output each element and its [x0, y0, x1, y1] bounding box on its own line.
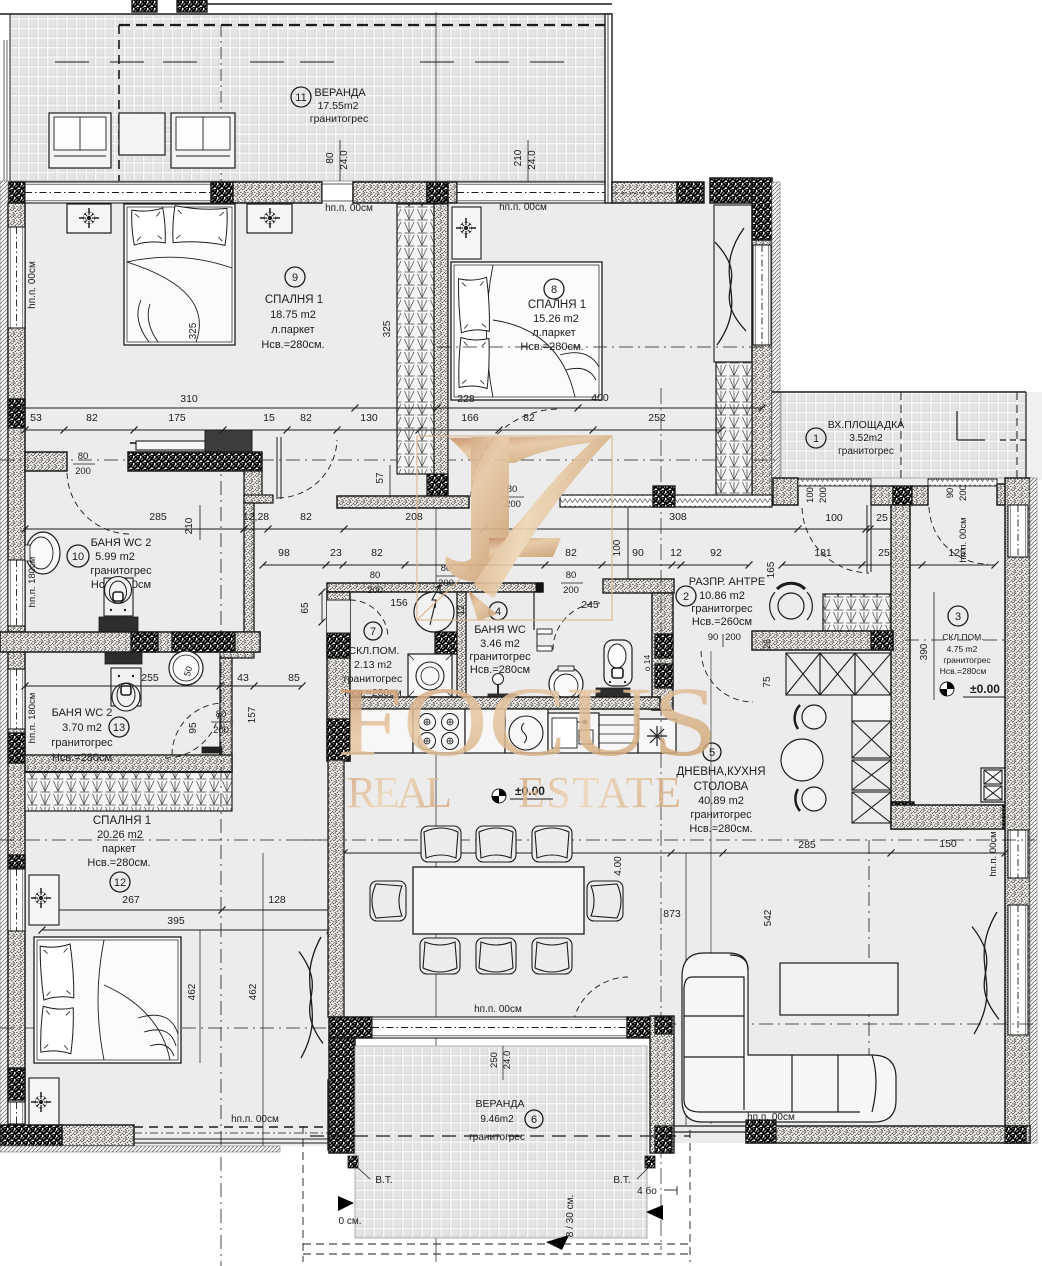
svg-text:Нсв.=280см: Нсв.=280см	[940, 666, 987, 676]
svg-text:82: 82	[565, 547, 577, 559]
svg-text:3.46 m2: 3.46 m2	[480, 638, 520, 650]
svg-text:80: 80	[78, 451, 89, 462]
svg-text:FOCUS: FOCUS	[337, 666, 718, 777]
svg-text:252: 252	[648, 412, 666, 424]
svg-text:200: 200	[818, 487, 829, 503]
svg-text:90: 90	[945, 488, 956, 499]
svg-text:5.99 m2: 5.99 m2	[95, 551, 135, 563]
svg-text:паркет: паркет	[102, 843, 136, 855]
svg-text:4: 4	[495, 606, 501, 618]
svg-text:hп.п. 00см: hп.п. 00см	[474, 1004, 522, 1015]
svg-text:156: 156	[390, 597, 408, 609]
svg-text:100: 100	[825, 512, 843, 524]
svg-text:82: 82	[300, 511, 312, 523]
svg-text:395: 395	[167, 915, 185, 927]
svg-text:6: 6	[531, 1114, 537, 1126]
svg-text:15: 15	[263, 412, 275, 424]
svg-text:В.Т.: В.Т.	[375, 1175, 392, 1186]
svg-text:90: 90	[632, 547, 644, 559]
svg-text:100: 100	[805, 487, 816, 503]
svg-text:4 бо: 4 бо	[637, 1185, 657, 1197]
svg-text:100: 100	[612, 539, 623, 556]
svg-text:200: 200	[563, 585, 579, 596]
svg-text:СТОЛОВА: СТОЛОВА	[694, 781, 749, 793]
svg-text:210: 210	[513, 149, 524, 166]
svg-text:0 см.: 0 см.	[339, 1216, 362, 1227]
svg-text:гранитогрес: гранитогрес	[943, 655, 991, 665]
svg-text:98: 98	[278, 547, 290, 559]
svg-text:Нсв.=260см: Нсв.=260см	[692, 616, 752, 628]
svg-text:255: 255	[141, 672, 159, 684]
svg-text:65: 65	[300, 602, 311, 614]
svg-text:hп.п. 00см: hп.п. 00см	[27, 261, 38, 309]
svg-text:4.00: 4.00	[613, 856, 624, 876]
svg-text:128: 128	[268, 894, 286, 906]
svg-text:гранитогрес: гранитогрес	[469, 651, 531, 663]
svg-text:СКЛ.ПОМ.: СКЛ.ПОМ.	[349, 645, 400, 657]
svg-text:РАЗПР. АНТРЕ: РАЗПР. АНТРЕ	[689, 576, 765, 588]
svg-text:3: 3	[955, 611, 961, 623]
svg-text:11: 11	[295, 92, 306, 104]
svg-text:310: 310	[180, 393, 198, 405]
svg-text:гранитогрес: гранитогрес	[90, 565, 152, 577]
svg-text:4.75 m2: 4.75 m2	[947, 644, 978, 654]
svg-text:166: 166	[461, 412, 479, 424]
svg-text:СПАЛНЯ 1: СПАЛНЯ 1	[265, 294, 323, 306]
svg-text:hп.п. 00см: hп.п. 00см	[325, 203, 373, 214]
svg-text:200: 200	[367, 585, 383, 596]
svg-text:325: 325	[188, 322, 199, 339]
svg-text:308: 308	[669, 511, 687, 523]
svg-text:л.паркет: л.паркет	[271, 324, 314, 336]
svg-text:12: 12	[456, 605, 466, 615]
svg-text:75: 75	[762, 676, 773, 688]
svg-text:53: 53	[30, 412, 42, 424]
svg-text:8: 8	[551, 284, 557, 296]
svg-text:БАНЯ WC 2: БАНЯ WC 2	[91, 537, 152, 549]
svg-text:200: 200	[725, 632, 741, 643]
svg-text:hп.п. 180см: hп.п. 180см	[27, 557, 38, 608]
svg-text:9.46m2: 9.46m2	[480, 1114, 514, 1125]
svg-text:130: 130	[360, 412, 378, 424]
svg-text:25: 25	[878, 547, 890, 559]
svg-text:23: 23	[330, 547, 342, 559]
svg-text:542: 542	[763, 909, 774, 926]
svg-text:17.55m2: 17.55m2	[318, 100, 359, 112]
svg-text:15.26 m2: 15.26 m2	[533, 313, 579, 325]
svg-text:8 / 30 см.: 8 / 30 см.	[565, 1195, 576, 1237]
svg-text:26: 26	[762, 639, 772, 649]
svg-text:9: 9	[292, 272, 298, 284]
svg-text:СПАЛНЯ 1: СПАЛНЯ 1	[528, 299, 586, 311]
svg-text:л.паркет: л.паркет	[532, 327, 575, 339]
svg-text:80: 80	[325, 152, 336, 164]
svg-text:208: 208	[405, 511, 423, 523]
svg-text:400: 400	[591, 392, 609, 404]
svg-text:462: 462	[248, 983, 259, 1000]
svg-text:3.52m2: 3.52m2	[849, 433, 883, 444]
svg-text:24.0: 24.0	[502, 1051, 513, 1070]
svg-text:Нсв.=280см.: Нсв.=280см.	[87, 857, 150, 869]
svg-text:ВЕРАНДА: ВЕРАНДА	[314, 87, 366, 99]
svg-text:гранитогрес: гранитогрес	[469, 1132, 525, 1143]
svg-text:гранитогрес: гранитогрес	[691, 603, 753, 615]
svg-text:10.86 m2: 10.86 m2	[699, 590, 745, 602]
svg-text:ВЕРАНДА: ВЕРАНДА	[475, 1098, 524, 1110]
svg-text:БАНЯ WC: БАНЯ WC	[474, 624, 526, 636]
svg-text:82: 82	[86, 412, 98, 424]
svg-text:175: 175	[168, 412, 186, 424]
svg-text:390: 390	[919, 643, 930, 660]
svg-text:±0.00: ±0.00	[970, 682, 1000, 696]
svg-text:85: 85	[288, 672, 300, 684]
svg-text:гранитогрес: гранитогрес	[690, 809, 752, 821]
svg-text:40.89 m2: 40.89 m2	[698, 795, 744, 807]
svg-text:10: 10	[72, 551, 84, 563]
svg-text:hп.п. 00см: hп.п. 00см	[958, 517, 969, 562]
svg-text:95: 95	[188, 722, 199, 734]
svg-text:210: 210	[184, 517, 195, 534]
svg-text:20.26 m2: 20.26 m2	[97, 829, 143, 841]
svg-text:1: 1	[813, 433, 819, 445]
svg-text:Нсв.=280см.: Нсв.=280см.	[261, 339, 324, 351]
svg-text:267: 267	[122, 894, 140, 906]
svg-text:24.0: 24.0	[527, 150, 538, 170]
svg-text:18.75 m2: 18.75 m2	[270, 309, 316, 321]
svg-text:873: 873	[663, 908, 681, 920]
svg-text:200: 200	[958, 485, 969, 501]
svg-text:Нсв.=280см.: Нсв.=280см.	[689, 823, 752, 835]
svg-text:245: 245	[581, 599, 599, 611]
svg-text:12,28: 12,28	[243, 511, 269, 523]
svg-text:2: 2	[683, 591, 689, 603]
svg-text:90: 90	[708, 632, 719, 643]
svg-text:165: 165	[766, 561, 777, 578]
svg-text:250: 250	[489, 1052, 500, 1068]
svg-text:Нсв.=280см: Нсв.=280см	[52, 752, 112, 764]
svg-text:150: 150	[939, 838, 957, 850]
svg-text:157: 157	[247, 706, 258, 723]
svg-text:80: 80	[566, 570, 577, 581]
svg-text:гранитогрес: гранитогрес	[838, 446, 894, 457]
svg-text:24.0: 24.0	[339, 150, 350, 170]
svg-text:462: 462	[187, 983, 198, 1000]
svg-text:REAL: REAL	[347, 768, 452, 817]
svg-text:82: 82	[371, 547, 383, 559]
svg-text:гранитогрес: гранитогрес	[51, 737, 113, 749]
svg-text:200: 200	[213, 725, 229, 736]
svg-text:СПАЛНЯ 1: СПАЛНЯ 1	[93, 815, 151, 827]
svg-text:СКЛ.ПОМ.: СКЛ.ПОМ.	[942, 632, 983, 642]
svg-text:hп.п. 00см: hп.п. 00см	[499, 202, 547, 213]
svg-text:hп.п. 180см: hп.п. 180см	[27, 693, 38, 744]
svg-text:181: 181	[814, 547, 832, 559]
svg-text:285: 285	[798, 839, 816, 851]
svg-text:гранитогрес: гранитогрес	[310, 113, 368, 125]
svg-text:hп.п. 00см: hп.п. 00см	[231, 1114, 279, 1125]
svg-text:92: 92	[710, 547, 722, 559]
svg-text:200: 200	[75, 466, 91, 477]
svg-text:В.Т.: В.Т.	[613, 1175, 630, 1186]
svg-text:25: 25	[876, 512, 888, 524]
svg-text:12: 12	[670, 547, 682, 559]
svg-text:57: 57	[375, 472, 386, 484]
svg-text:228: 228	[457, 393, 475, 405]
svg-text:285: 285	[149, 511, 167, 523]
svg-text:82: 82	[300, 412, 312, 424]
svg-text:ВХ.ПЛОЩАДКА: ВХ.ПЛОЩАДКА	[828, 419, 905, 431]
svg-text:80: 80	[216, 709, 227, 720]
svg-text:ESTATE: ESTATE	[518, 768, 681, 817]
svg-text:7: 7	[370, 626, 376, 638]
svg-text:43: 43	[237, 672, 249, 684]
svg-text:БАНЯ WC 2: БАНЯ WC 2	[52, 707, 113, 719]
svg-text:hп.п. 00см: hп.п. 00см	[988, 831, 999, 876]
svg-text:13: 13	[113, 722, 125, 734]
svg-text:12: 12	[114, 877, 126, 889]
svg-text:82: 82	[523, 412, 535, 424]
svg-text:3.70 m2: 3.70 m2	[62, 722, 102, 734]
svg-text:80: 80	[370, 570, 381, 581]
svg-text:325: 325	[382, 320, 393, 337]
